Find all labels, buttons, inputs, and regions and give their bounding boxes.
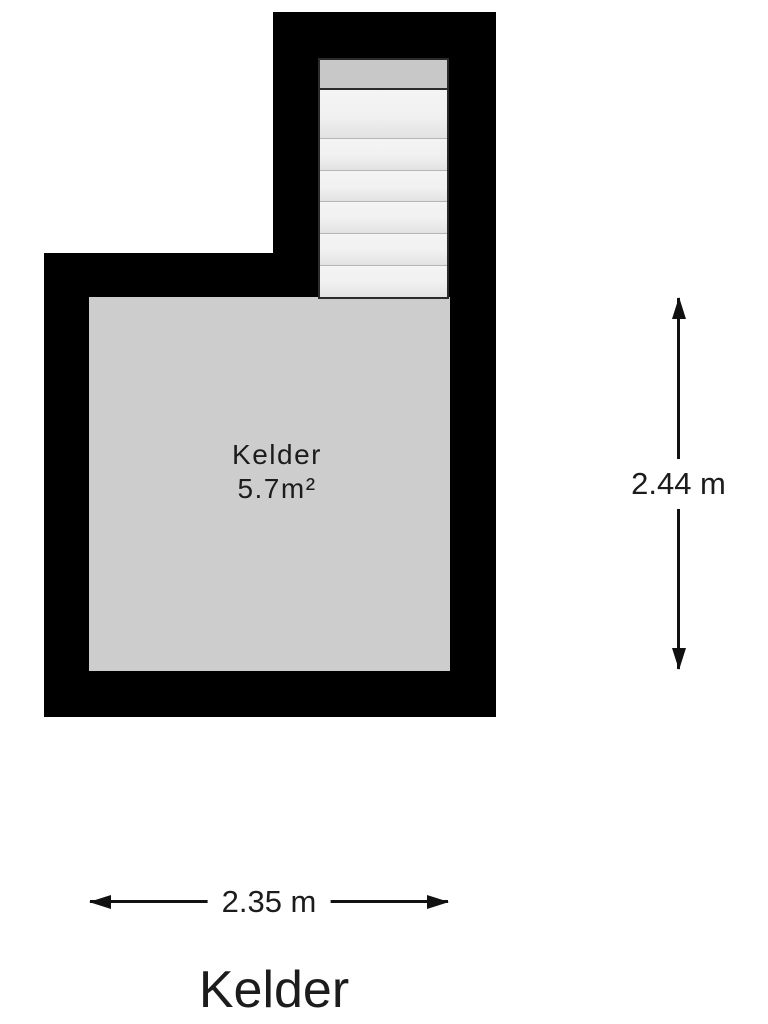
dimension-horizontal: 2.35 m [90, 900, 448, 903]
arrow-down-icon [672, 648, 686, 670]
room-name: Kelder [232, 438, 322, 472]
dimension-vertical: 2.44 m [677, 298, 680, 669]
arrow-right-icon [427, 895, 449, 909]
stair-tread [320, 138, 447, 170]
floorplan-canvas: Kelder 5.7m² 2.44 m 2.35 m Kelder [0, 0, 768, 1024]
staircase [318, 58, 449, 299]
stair-tread [320, 170, 447, 202]
room-label: Kelder 5.7m² [232, 438, 322, 506]
plan-title: Kelder [199, 960, 349, 1020]
stair-tread [320, 265, 447, 297]
arrow-up-icon [672, 297, 686, 319]
stairs-treads [320, 90, 447, 297]
arrow-left-icon [89, 895, 111, 909]
room-area: 5.7m² [232, 472, 322, 506]
stair-tread [320, 90, 447, 138]
stair-tread [320, 201, 447, 233]
stair-landing [320, 60, 447, 90]
dimension-vertical-label: 2.44 m [629, 459, 728, 509]
dimension-horizontal-label: 2.35 m [208, 884, 331, 920]
stair-tread [320, 233, 447, 265]
